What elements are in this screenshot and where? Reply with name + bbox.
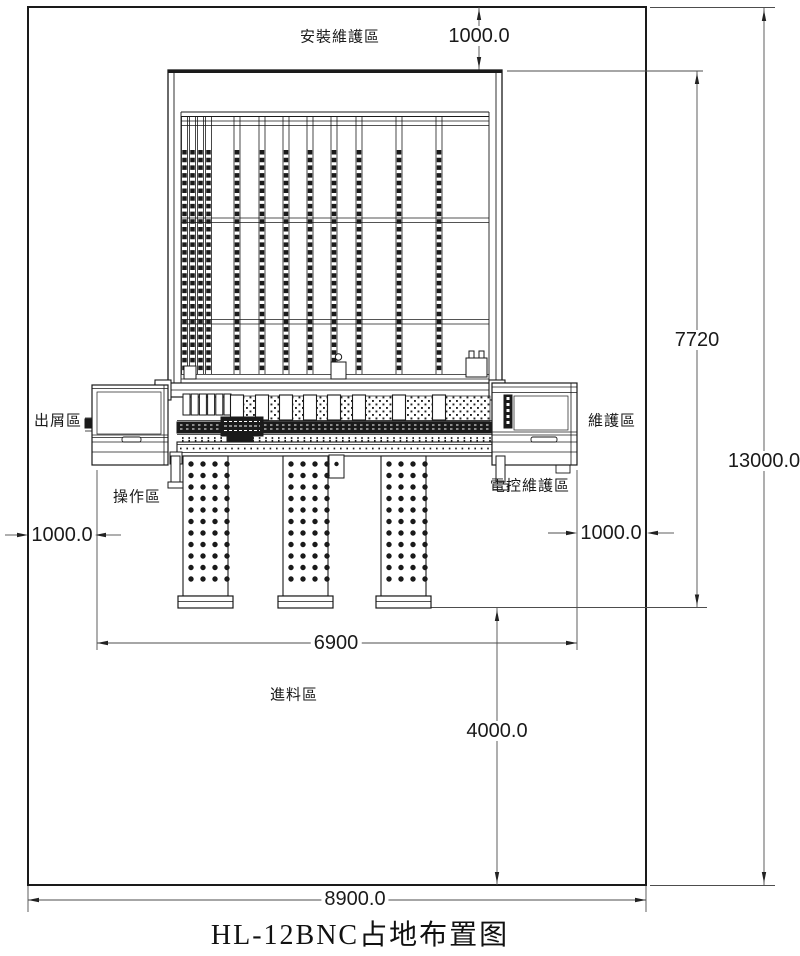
zone-label-feeding: 進料區 — [270, 688, 318, 703]
drawing-title: HL-12BNC占地布置图 — [211, 922, 509, 950]
dim-front-clearance: 4000.0 — [463, 721, 530, 741]
zone-label-electrical-maintenance: 電控維護區 — [490, 479, 570, 494]
dim-total-depth: 13000.0 — [725, 451, 800, 471]
dim-machine-depth: 7720 — [672, 330, 723, 350]
dim-right-clearance: 1000.0 — [577, 523, 644, 543]
zone-label-operation: 操作區 — [113, 490, 161, 505]
support-legs — [178, 456, 431, 608]
zone-label-maintenance: 維護區 — [588, 414, 636, 429]
dim-left-clearance: 1000.0 — [28, 525, 95, 545]
dim-total-width: 8900.0 — [321, 889, 388, 909]
zone-label-chip-discharge: 出屑區 — [34, 414, 82, 429]
zone-label-install-maintenance: 安裝維護區 — [300, 30, 380, 45]
bed-apron — [177, 442, 492, 456]
dim-machine-width: 6900 — [311, 633, 362, 653]
floor-plan-page: 安裝維護區 1000.0 7720 13000.0 出屑區 維護區 操作區 電控… — [0, 0, 800, 956]
floor-plan-drawing — [0, 0, 800, 956]
mid-connector — [329, 455, 344, 478]
gantry-frame — [168, 70, 502, 385]
dim-top-clearance: 1000.0 — [445, 26, 512, 46]
